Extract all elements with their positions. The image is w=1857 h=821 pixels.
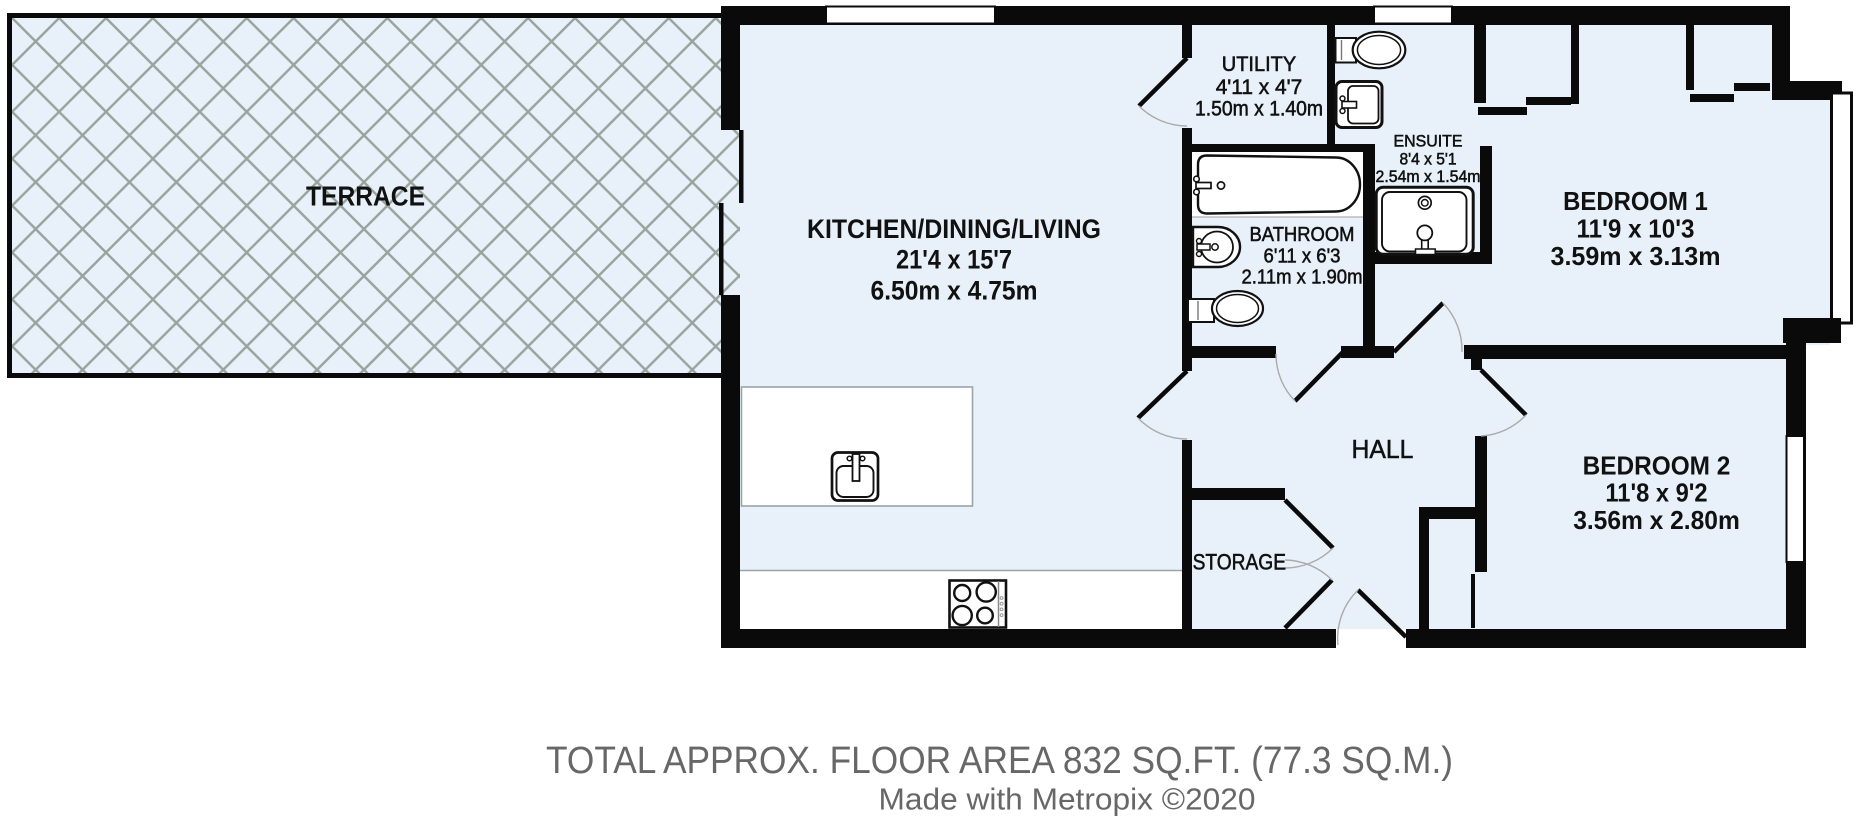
- svg-text:KITCHEN/DINING/LIVING: KITCHEN/DINING/LIVING: [807, 214, 1101, 244]
- svg-text:8'4 x 5'1: 8'4 x 5'1: [1400, 149, 1457, 168]
- svg-text:3.56m x 2.80m: 3.56m x 2.80m: [1573, 505, 1740, 535]
- svg-text:2.11m x 1.90m: 2.11m x 1.90m: [1242, 266, 1363, 289]
- svg-text:2.54m x 1.54m: 2.54m x 1.54m: [1376, 167, 1481, 186]
- svg-text:11'8 x 9'2: 11'8 x 9'2: [1605, 478, 1707, 508]
- svg-text:1.50m x 1.40m: 1.50m x 1.40m: [1195, 98, 1323, 121]
- svg-text:6'11 x 6'3: 6'11 x 6'3: [1264, 245, 1341, 268]
- svg-text:TERRACE: TERRACE: [306, 181, 425, 212]
- svg-text:BEDROOM 1: BEDROOM 1: [1563, 186, 1708, 216]
- svg-text:ENSUITE: ENSUITE: [1394, 131, 1463, 150]
- svg-text:TOTAL APPROX. FLOOR AREA 832 S: TOTAL APPROX. FLOOR AREA 832 SQ.FT. (77.…: [546, 740, 1453, 782]
- svg-text:BEDROOM 2: BEDROOM 2: [1583, 450, 1731, 480]
- svg-text:21'4 x 15'7: 21'4 x 15'7: [896, 245, 1012, 275]
- svg-text:UTILITY: UTILITY: [1222, 53, 1297, 76]
- svg-text:STORAGE: STORAGE: [1193, 549, 1286, 574]
- svg-text:4'11 x 4'7: 4'11 x 4'7: [1216, 76, 1303, 99]
- svg-text:HALL: HALL: [1352, 434, 1414, 464]
- svg-text:6.50m x 4.75m: 6.50m x 4.75m: [871, 276, 1038, 306]
- svg-text:3.59m x 3.13m: 3.59m x 3.13m: [1551, 241, 1721, 271]
- svg-text:Made with Metropix ©2020: Made with Metropix ©2020: [879, 781, 1256, 816]
- svg-text:BATHROOM: BATHROOM: [1250, 223, 1355, 246]
- svg-text:11'9 x 10'3: 11'9 x 10'3: [1577, 214, 1695, 244]
